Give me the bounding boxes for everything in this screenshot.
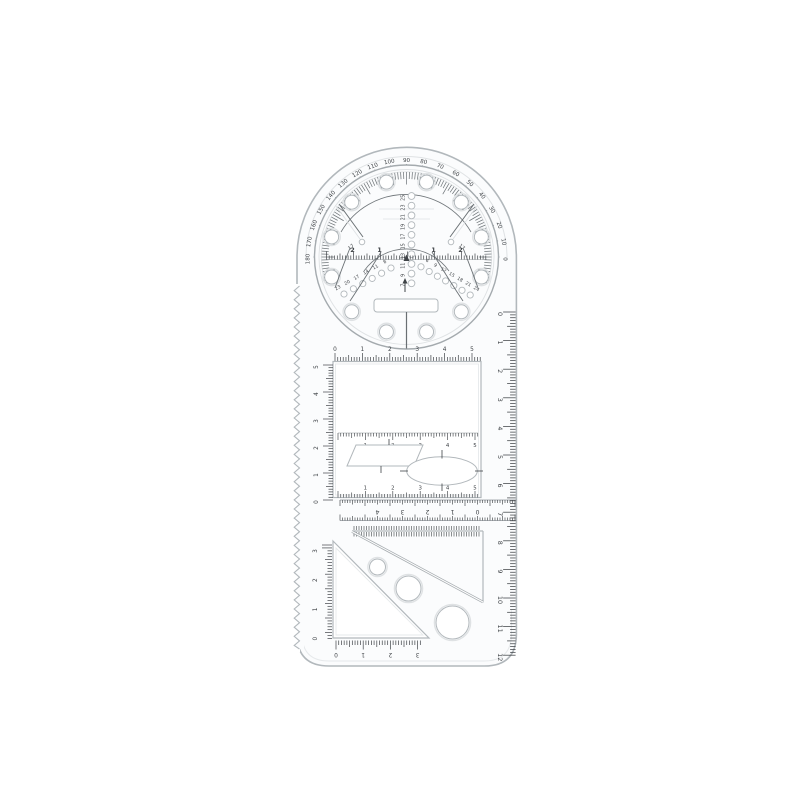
bottom-scale-label: 5 xyxy=(473,486,476,492)
arc-hole xyxy=(443,278,449,284)
needle-hole xyxy=(448,239,454,245)
cross-ruler-label: 4 xyxy=(375,508,379,515)
left-scale-label: 0 xyxy=(314,500,320,504)
triangle-vscale-label: 1 xyxy=(313,607,319,611)
column-hole-label: 21 xyxy=(401,214,407,220)
arc-hole xyxy=(379,270,385,276)
disc-hole xyxy=(474,230,488,244)
column-hole xyxy=(408,261,415,268)
triangle-vscale-label: 2 xyxy=(313,578,319,582)
triangle-hscale-label: 3 xyxy=(415,651,419,657)
column-hole xyxy=(408,270,415,277)
right-ruler-label: 1 xyxy=(496,341,504,345)
diameter-label: 1 xyxy=(377,246,382,254)
column-hole xyxy=(408,212,415,219)
right-ruler-label: 3 xyxy=(496,398,504,402)
cross-ruler-label: 0 xyxy=(475,508,479,515)
arc-hole xyxy=(369,275,375,281)
column-hole xyxy=(408,241,415,248)
slot-window xyxy=(374,299,438,312)
diameter-label: 2 xyxy=(458,246,463,254)
column-hole-label: 9 xyxy=(401,274,407,277)
column-hole xyxy=(408,231,415,238)
disc-hole xyxy=(345,305,359,319)
triangle-hscale-label: 0 xyxy=(334,651,338,657)
column-hole xyxy=(408,202,415,209)
bottom-scale-label: 3 xyxy=(418,486,421,492)
arc-hole xyxy=(434,273,440,279)
column-hole xyxy=(408,251,415,258)
left-scale-label: 2 xyxy=(314,446,320,450)
top-scale-label: 0 xyxy=(333,347,337,353)
bottom-scale-label: 2 xyxy=(391,486,394,492)
cross-ruler-label: 1 xyxy=(450,508,454,515)
rectangle-template-section: 0123455432101234512345 xyxy=(314,347,483,504)
arc-hole xyxy=(388,265,394,271)
column-hole-label: 7 xyxy=(401,284,407,287)
parallelogram-window xyxy=(347,445,423,466)
product-photo-canvas: 0102030405060708090100110120130140150160… xyxy=(0,0,800,800)
top-scale-label: 1 xyxy=(361,347,365,353)
triangle-vscale-label: 3 xyxy=(313,549,319,553)
arc-hole xyxy=(418,264,424,270)
degree-label: 0 xyxy=(502,257,508,261)
disc-hole xyxy=(345,195,359,209)
left-scale-label: 1 xyxy=(314,473,320,477)
diameter-label: 2 xyxy=(350,246,355,254)
disc-hole xyxy=(325,270,339,284)
rotating-disc: 2523211917151311971717211223201714118691… xyxy=(315,165,499,349)
inner-scale-label: 4 xyxy=(446,443,450,449)
disc-hole xyxy=(420,175,434,189)
circle-hole-small xyxy=(370,559,386,575)
column-hole-label: 17 xyxy=(401,234,407,240)
triangle-hscale-label: 2 xyxy=(388,651,392,657)
column-hole-label: 19 xyxy=(401,224,407,230)
cross-ruler-label: 2 xyxy=(425,508,429,515)
arc-hole xyxy=(459,287,465,293)
right-ruler-label: 2 xyxy=(496,369,504,373)
bottom-scale-label: 4 xyxy=(446,486,450,492)
arc-hole xyxy=(426,268,432,274)
circle-hole-large xyxy=(436,606,469,639)
degree-label: 90 xyxy=(403,158,411,164)
column-hole xyxy=(408,280,415,287)
inner-scale-label: 5 xyxy=(473,443,476,449)
disc-hole xyxy=(420,325,434,339)
left-scale-label: 3 xyxy=(314,419,320,423)
cross-ruler-label: 3 xyxy=(400,508,404,515)
disc-hole xyxy=(379,325,393,339)
right-ruler-label: 7 xyxy=(496,512,504,516)
degree-label: 180 xyxy=(306,253,312,264)
right-ruler-label: 4 xyxy=(496,426,504,430)
circle-hole-medium xyxy=(396,576,421,601)
right-ruler-label: 9 xyxy=(496,569,504,573)
disc-hole xyxy=(379,175,393,189)
disc-hole xyxy=(454,195,468,209)
ellipse-window xyxy=(407,457,478,485)
column-hole xyxy=(408,193,415,200)
right-ruler-label: 10 xyxy=(496,596,504,604)
disc-hole xyxy=(454,305,468,319)
right-ruler-label: 12 xyxy=(496,653,504,661)
right-ruler-label: 5 xyxy=(496,455,504,459)
bottom-scale-label: 1 xyxy=(364,486,367,492)
column-hole-label: 15 xyxy=(401,243,407,249)
column-hole-label: 11 xyxy=(401,263,407,269)
top-scale-label: 5 xyxy=(470,347,474,353)
top-scale-label: 2 xyxy=(388,347,392,353)
triangle-hscale-label: 1 xyxy=(361,651,365,657)
wavy-left-edge xyxy=(287,284,304,652)
column-hole xyxy=(408,222,415,229)
right-ruler-label: 11 xyxy=(496,625,504,633)
disc-hole xyxy=(474,270,488,284)
needle-hole xyxy=(359,239,365,245)
left-scale-label: 4 xyxy=(314,392,320,396)
arc-hole xyxy=(341,291,347,297)
right-ruler-label: 8 xyxy=(496,541,504,545)
column-hole-label: 23 xyxy=(401,204,407,210)
right-ruler-label: 6 xyxy=(496,484,504,488)
right-ruler-label: 0 xyxy=(496,312,504,316)
triangle-vscale-label: 0 xyxy=(313,636,319,640)
column-hole-label: 25 xyxy=(401,195,407,201)
top-scale-label: 4 xyxy=(443,347,447,353)
arc-hole xyxy=(350,286,356,292)
left-scale-label: 5 xyxy=(314,365,320,369)
multifunction-geometry-ruler: 0102030405060708090100110120130140150160… xyxy=(0,0,800,800)
top-scale-label: 3 xyxy=(415,347,419,353)
arc-hole xyxy=(467,292,473,298)
disc-hole xyxy=(325,230,339,244)
